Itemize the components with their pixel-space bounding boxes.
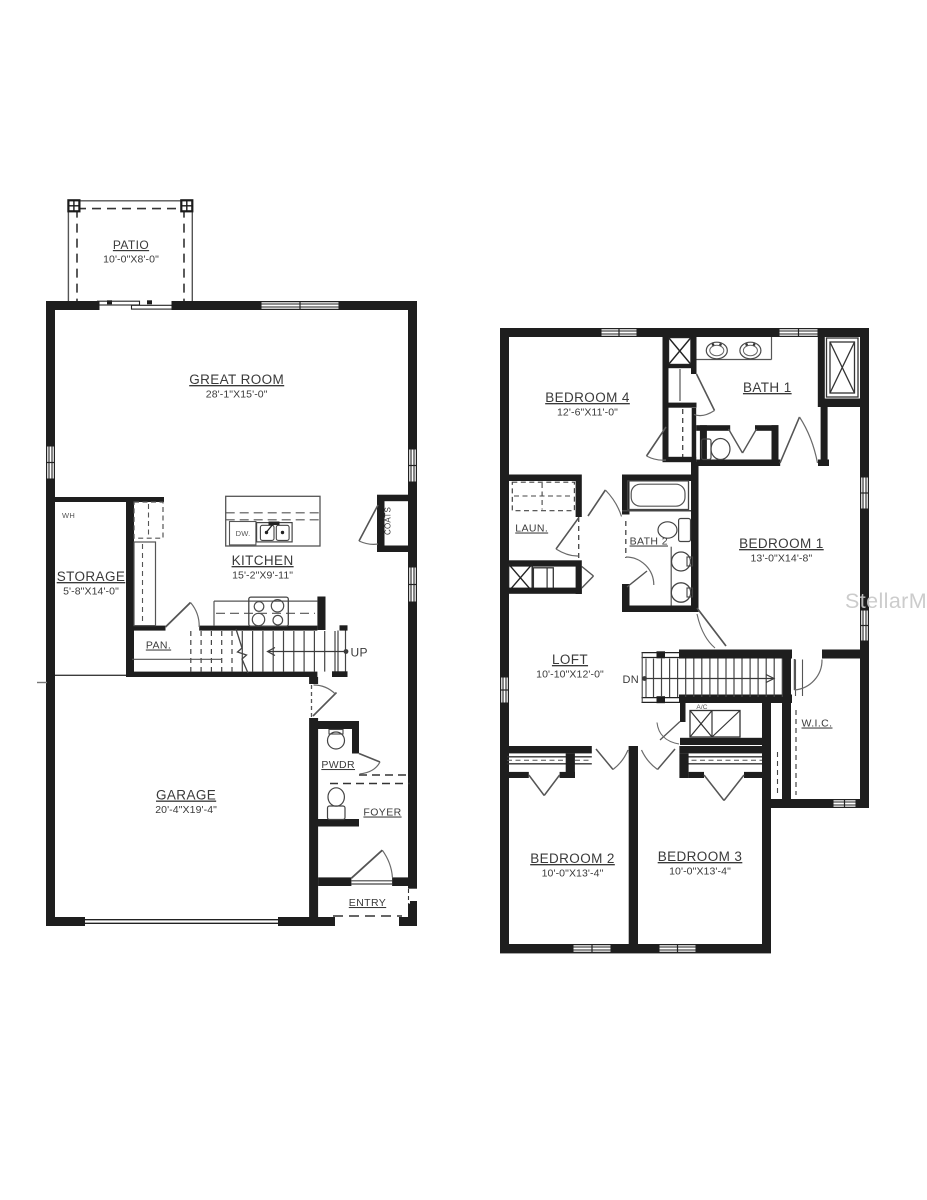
- svg-text:15'-2"X9'-11": 15'-2"X9'-11": [232, 570, 293, 582]
- svg-text:WH: WH: [62, 511, 75, 520]
- svg-text:10'-0"X13'-4": 10'-0"X13'-4": [669, 866, 731, 878]
- svg-text:A/C: A/C: [696, 704, 707, 711]
- svg-text:GARAGE: GARAGE: [156, 788, 216, 803]
- svg-text:STORAGE: STORAGE: [57, 569, 126, 584]
- svg-text:COATS: COATS: [384, 507, 393, 535]
- svg-text:LOFT: LOFT: [552, 652, 588, 667]
- svg-text:DW.: DW.: [236, 529, 251, 538]
- svg-text:PATIO: PATIO: [113, 238, 149, 252]
- svg-text:BEDROOM 4: BEDROOM 4: [545, 390, 630, 405]
- svg-text:13'-0"X14'-8": 13'-0"X14'-8": [750, 553, 812, 565]
- svg-text:BATH 1: BATH 1: [743, 380, 792, 395]
- svg-text:FOYER: FOYER: [363, 807, 401, 819]
- svg-text:BATH 2: BATH 2: [630, 536, 668, 548]
- svg-text:12'-6"X11'-0": 12'-6"X11'-0": [557, 407, 618, 419]
- svg-text:10'-0"X13'-4": 10'-0"X13'-4": [542, 868, 604, 880]
- svg-text:20'-4"X19'-4": 20'-4"X19'-4": [155, 804, 217, 816]
- svg-text:PWDR: PWDR: [321, 759, 355, 771]
- svg-text:W.I.C.: W.I.C.: [802, 718, 833, 730]
- svg-text:KITCHEN: KITCHEN: [232, 553, 294, 568]
- svg-text:LAUN.: LAUN.: [515, 523, 548, 535]
- svg-text:PAN.: PAN.: [146, 640, 171, 652]
- svg-text:BEDROOM 3: BEDROOM 3: [658, 849, 743, 864]
- svg-text:UP: UP: [351, 646, 368, 660]
- svg-text:GREAT ROOM: GREAT ROOM: [189, 372, 284, 387]
- svg-text:28'-1"X15'-0": 28'-1"X15'-0": [206, 389, 268, 401]
- svg-text:ENTRY: ENTRY: [349, 897, 386, 909]
- svg-text:5'-8"X14'-0": 5'-8"X14'-0": [63, 586, 119, 598]
- svg-text:DN: DN: [623, 674, 640, 686]
- svg-text:BEDROOM 2: BEDROOM 2: [530, 851, 615, 866]
- svg-text:10'-10"X12'-0": 10'-10"X12'-0": [536, 669, 604, 681]
- svg-text:StellarMLS: StellarMLS: [845, 589, 927, 613]
- svg-text:BEDROOM 1: BEDROOM 1: [739, 536, 824, 551]
- svg-text:10'-0"X8'-0": 10'-0"X8'-0": [103, 254, 159, 266]
